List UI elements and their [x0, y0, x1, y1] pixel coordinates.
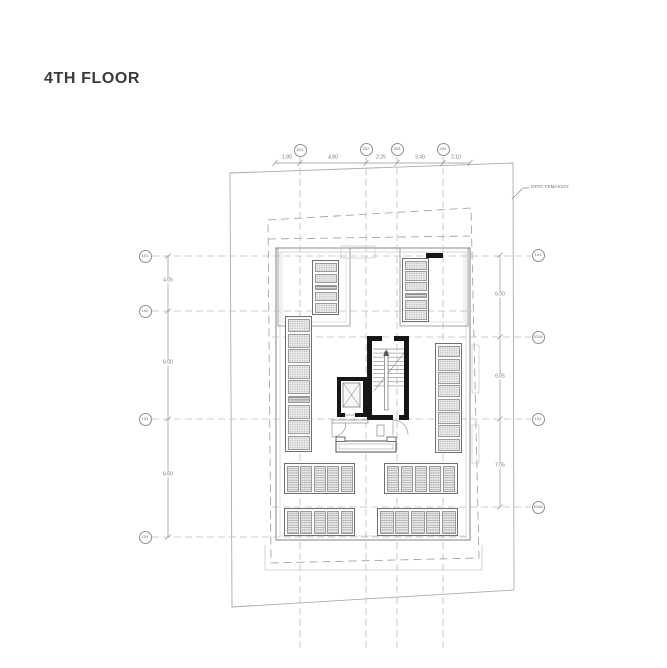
panel-hatch-band: [315, 285, 337, 290]
grid-bubble-top-2: 202: [360, 143, 373, 156]
grid-bubble-left-2: 102: [139, 305, 152, 318]
panel-cell: [438, 412, 460, 424]
grid-bubble-label: 203: [394, 147, 401, 151]
grid-bubble-label: 104A: [533, 505, 542, 509]
panel-cell: [327, 466, 339, 492]
panel-cell: [380, 511, 394, 534]
dim-label-right-2: 6.05: [494, 375, 506, 380]
panel-cell: [288, 420, 310, 434]
panel-group-row1-left: [284, 463, 355, 494]
dim-label-top-2: 4.80: [328, 156, 338, 161]
panel-cell: [438, 425, 460, 437]
grid-bubble-label: 202: [363, 147, 370, 151]
dim-label-top-5: 2.10: [451, 156, 461, 161]
grid-bubble-label: 103: [142, 417, 149, 421]
panel-cell: [287, 511, 299, 534]
panel-cell: [288, 380, 310, 394]
dim-label-left-1: 4.05: [162, 279, 174, 284]
panel-cell: [341, 466, 353, 492]
panel-cell: [438, 385, 460, 397]
panel-cell: [341, 511, 353, 534]
dim-label-left-3: 8.60: [162, 473, 174, 478]
plan-linework: [0, 0, 667, 668]
panel-cell: [314, 466, 326, 492]
panel-group-row1-right: [384, 463, 458, 494]
dim-label-top-3: 2.25: [376, 156, 386, 161]
grid-bubble-right-2: 102A: [532, 331, 545, 344]
panel-cell: [401, 466, 414, 492]
panel-group-left-column: [285, 316, 312, 452]
panel-cell: [405, 300, 427, 309]
panel-cell: [442, 511, 456, 534]
panel-cell: [288, 405, 310, 419]
grid-bubble-label: 204: [440, 147, 447, 151]
grid-bubble-label: 103: [535, 417, 542, 421]
grid-bubble-label: 101: [535, 253, 542, 257]
dim-label-top-4: 3.40: [415, 156, 425, 161]
panel-cell: [315, 274, 337, 284]
panel-cell: [429, 466, 442, 492]
panel-cell: [387, 466, 400, 492]
panel-cell: [288, 365, 310, 379]
panel-group-row2-right: [377, 508, 458, 536]
dim-label-left-2: 8.00: [162, 361, 174, 366]
grid-bubble-left-1: 101: [139, 250, 152, 263]
panel-cell: [327, 511, 339, 534]
panel-hatch-band: [405, 293, 427, 298]
dim-label-top-1: 1.80: [282, 156, 292, 161]
walkway-slab: [336, 441, 396, 452]
dim-label-right-1: 6.00: [494, 293, 506, 298]
panel-cell: [415, 466, 428, 492]
panel-cell: [315, 303, 337, 313]
grid-bubble-label: 102: [142, 309, 149, 313]
grid-bubble-right-4: 104A: [532, 501, 545, 514]
panel-group-top-left: [312, 260, 339, 315]
panel-cell: [405, 282, 427, 291]
panel-cell: [405, 261, 427, 270]
panel-cell: [300, 511, 312, 534]
panel-cell: [395, 511, 409, 534]
panel-cell: [426, 511, 440, 534]
grid-bubble-top-4: 204: [437, 143, 450, 156]
panel-cell: [405, 271, 427, 280]
grid-bubble-right-1: 101: [532, 249, 545, 262]
panel-group-row2-left: [284, 508, 355, 536]
boundary-note: ΟΡΙΟ ΤΕΜΑΧΙΟΥ: [531, 184, 569, 189]
panel-cell: [288, 349, 310, 363]
panel-cell: [314, 511, 326, 534]
grid-bubble-top-1: 201: [294, 144, 307, 157]
floor-plan-page: 4TH FLOOR: [0, 0, 667, 668]
grid-bubble-label: 102A: [533, 335, 542, 339]
panel-cell: [405, 310, 427, 319]
grid-bubble-label: 201: [297, 148, 304, 152]
panel-hatch-band: [288, 396, 310, 403]
panel-cell: [438, 346, 460, 358]
grid-bubble-left-3: 103: [139, 413, 152, 426]
panel-cell: [300, 466, 312, 492]
panel-cell: [315, 292, 337, 302]
stair-stringer: [385, 352, 389, 410]
panel-group-right-column: [435, 343, 462, 453]
panel-group-top-right: [402, 258, 429, 322]
panel-cell: [438, 372, 460, 384]
note-leader-line: [512, 188, 529, 199]
panel-cell: [438, 359, 460, 371]
panel-cell: [288, 334, 310, 348]
panel-cell: [288, 319, 310, 333]
grid-bubble-top-3: 203: [391, 143, 404, 156]
dim-label-right-3: 7.05: [494, 464, 506, 469]
grid-bubble-right-3: 103: [532, 413, 545, 426]
panel-cell: [411, 511, 425, 534]
panel-cell: [287, 466, 299, 492]
panel-cell: [438, 439, 460, 451]
panel-cell: [438, 399, 460, 411]
panel-cell: [443, 466, 456, 492]
grid-bubble-label: 104: [142, 535, 149, 539]
grid-bubble-label: 101: [142, 254, 149, 258]
panel-cell: [315, 263, 337, 273]
panel-cell: [288, 436, 310, 450]
grid-bubble-left-4: 104: [139, 531, 152, 544]
